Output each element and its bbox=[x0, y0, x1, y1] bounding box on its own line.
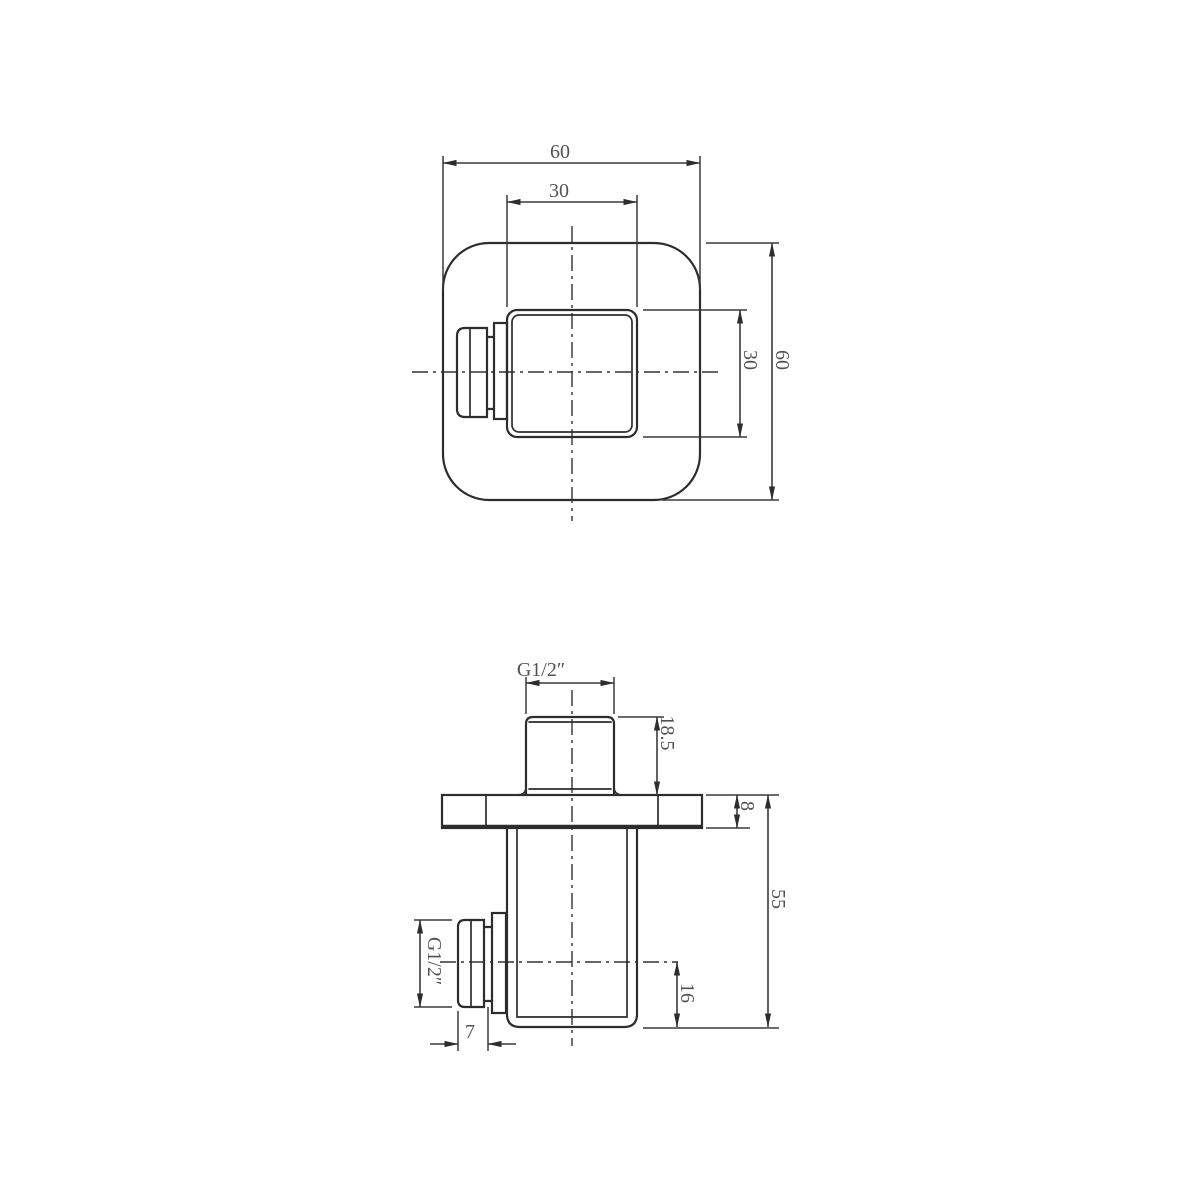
dim-side-thread-label: G1/2″ bbox=[423, 937, 445, 985]
dim-outlet-center-label: 16 bbox=[676, 983, 698, 1003]
dim-body-height: 30 bbox=[643, 310, 761, 437]
drawing-canvas: 60 30 30 60 bbox=[0, 0, 1200, 1200]
dim-plate-width-label: 60 bbox=[550, 141, 570, 163]
dim-side-thread: G1/2″ bbox=[414, 920, 452, 1007]
front-outlet-flange bbox=[494, 323, 507, 419]
technical-drawing: 60 30 30 60 bbox=[0, 0, 1200, 1200]
front-view: 60 30 30 60 bbox=[412, 141, 793, 521]
dim-plate-thickness-label: 8 bbox=[736, 801, 758, 811]
dim-outlet-center-to-base: 16 bbox=[676, 962, 698, 1027]
side-top-stub-fillet-right bbox=[614, 787, 623, 795]
side-top-stub-outline bbox=[526, 717, 614, 795]
dim-total-depth-label: 55 bbox=[767, 889, 789, 909]
dim-top-thread: G1/2″ bbox=[517, 659, 614, 714]
dim-plate-height-label: 60 bbox=[771, 350, 793, 370]
dim-total-depth: 55 bbox=[767, 795, 789, 1027]
side-view: G1/2″ 18.5 8 55 16 bbox=[414, 659, 789, 1051]
dim-side-thread-length-label: 7 bbox=[465, 1021, 475, 1043]
dim-body-width-label: 30 bbox=[549, 180, 569, 202]
dim-stub-height: 18.5 bbox=[618, 716, 678, 796]
dim-top-thread-label: G1/2″ bbox=[517, 659, 565, 681]
dim-stub-height-label: 18.5 bbox=[656, 716, 678, 751]
side-top-stub-fillet-left bbox=[517, 787, 526, 795]
side-outlet-flange bbox=[492, 913, 506, 1013]
dim-body-height-label: 30 bbox=[739, 350, 761, 370]
